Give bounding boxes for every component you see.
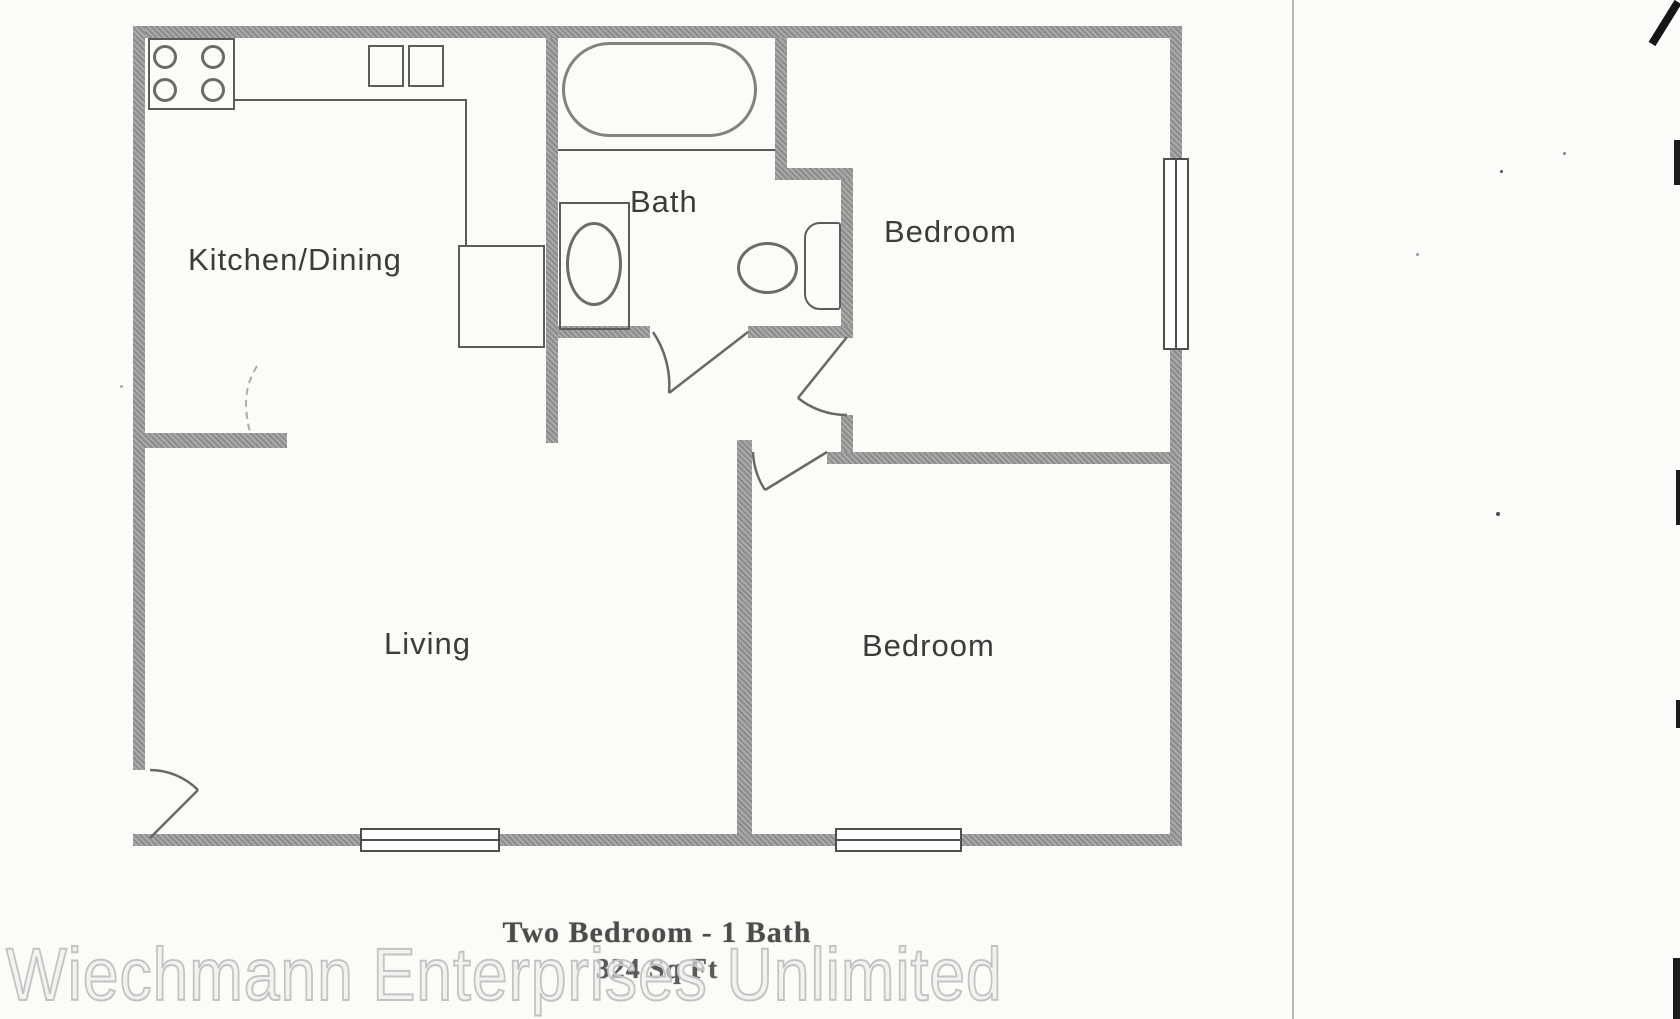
wall-kitchen-bath-divider: [546, 38, 558, 443]
wall-bottom-middle: [500, 834, 835, 846]
stove-burner: [153, 78, 177, 102]
room-label-bedroom-bottom: Bedroom: [862, 628, 995, 664]
room-label-bedroom-top: Bedroom: [884, 214, 1017, 250]
scan-speck: [1500, 170, 1503, 173]
counter-edge-horizontal: [235, 99, 467, 101]
toilet-tank: [804, 222, 841, 310]
stove-burner: [201, 78, 225, 102]
wall-bath-bottom-right: [748, 326, 853, 338]
scan-speck: [1563, 152, 1566, 155]
bathtub: [562, 42, 757, 137]
window-mullion: [1175, 160, 1177, 348]
scan-speck: [1416, 253, 1419, 256]
scan-right-margin: [1295, 0, 1680, 1019]
window-living: [360, 828, 500, 852]
wall-bath-jog: [775, 168, 853, 180]
wall-bath-right-upper: [775, 38, 787, 180]
wall-bottom-left: [133, 834, 360, 846]
bedroom1-door-leaf: [798, 337, 847, 398]
window-bedroom2: [835, 828, 962, 852]
room-label-kitchen-dining: Kitchen/Dining: [188, 242, 402, 278]
bath-door-leaf: [669, 332, 748, 393]
stove-burner: [153, 45, 177, 69]
tub-ledge-line: [558, 149, 775, 151]
kitchen-sink-basin-right: [408, 45, 444, 87]
scan-squiggle-artifact: [246, 366, 257, 432]
window-mullion: [837, 839, 960, 841]
wall-left: [133, 26, 145, 770]
stove-burner: [201, 45, 225, 69]
wall-living-bedroom2-divider: [737, 440, 752, 834]
wall-bath-right-lower: [841, 180, 853, 338]
bath-door-arc: [653, 332, 669, 393]
room-label-bath: Bath: [630, 184, 698, 220]
wall-kitchen-living-stub: [145, 433, 287, 448]
scan-speck: [1496, 512, 1500, 516]
scan-edge-artifact: [1673, 958, 1680, 1019]
window-bedroom1: [1163, 158, 1189, 350]
refrigerator: [458, 245, 545, 348]
scan-page-edge: [1292, 0, 1294, 1019]
counter-edge-vertical: [465, 99, 467, 247]
watermark-text: Wiechmann Enterprises Unlimited: [6, 938, 1003, 1012]
wall-bottom-right: [962, 834, 1182, 846]
bedroom1-door-arc: [798, 398, 847, 415]
kitchen-sink-basin-left: [368, 45, 404, 87]
wall-top: [133, 26, 1182, 38]
room-label-living: Living: [384, 626, 471, 662]
wall-bedroom-divider: [827, 452, 1182, 464]
bedroom2-door-leaf: [765, 452, 827, 490]
toilet-bowl: [737, 242, 798, 294]
scan-edge-artifact: [1674, 140, 1680, 185]
scanned-floor-plan-page: Kitchen/Dining Bath Bedroom Living Bedro…: [0, 0, 1680, 1019]
window-mullion: [362, 839, 498, 841]
scan-speck: [120, 385, 123, 388]
scan-edge-artifact: [1676, 700, 1680, 728]
wall-right-upper: [1170, 26, 1182, 160]
front-door-arc: [150, 770, 198, 790]
vanity-basin: [566, 222, 622, 306]
front-door-leaf: [150, 790, 198, 838]
scan-edge-artifact: [1676, 470, 1680, 525]
bedroom2-door-arc: [753, 452, 765, 490]
wall-right-lower: [1170, 348, 1182, 846]
